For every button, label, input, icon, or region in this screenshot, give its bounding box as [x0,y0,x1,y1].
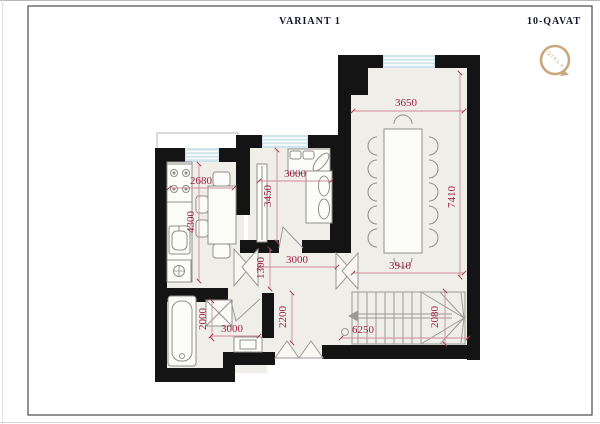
dim-stair-run: 6250 [352,324,375,336]
dim-kitchen-depth: 4300 [185,211,197,234]
kitchen-window [185,148,219,162]
dim-hall-offset: 1300 [255,257,267,280]
dim-living-depth: 7410 [446,186,458,209]
wall-segment [236,135,250,215]
dim-kitchen-width: 2680 [190,175,213,187]
stove-icon [167,164,192,202]
dim-hall-width: 3000 [286,254,309,266]
wall-segment [351,68,368,95]
dim-bedroom-width: 3000 [284,168,307,180]
washbasin-toilet [234,337,262,352]
variant-title: VARIANT 1 [279,16,341,27]
conference-table [384,129,422,253]
dim-living-bottom-width: 3910 [389,260,412,272]
wall-segment [302,240,331,253]
chair-icon [213,244,230,258]
bathtub [168,296,196,366]
chair-icon [196,196,208,213]
living-room-window [383,55,435,68]
corner-sofa [306,171,332,223]
dim-bath-length: 3000 [221,323,244,335]
bedroom-window [262,135,308,148]
floor-plan-drawing: VARIANT 1 10-QAVAT QIBLA [0,0,600,424]
washing-machine-icon [167,260,191,282]
wall-segment [223,352,235,382]
chair-icon [196,220,208,237]
dim-entry-depth: 2200 [277,306,289,329]
dim-living-top-width: 3650 [395,97,418,109]
floor-plan-sheet: VARIANT 1 10-QAVAT QIBLA [0,0,600,424]
wall-segment [262,293,274,338]
wall-segment [249,135,263,148]
wall-segment [322,345,480,359]
qibla-compass-icon: QIBLA [541,46,569,76]
wall-segment [155,148,185,162]
dining-table [208,186,236,244]
dim-bath-width: 2000 [197,308,209,331]
wall-segment [330,135,351,253]
floor-label: 10-QAVAT [527,16,581,27]
wall-segment [467,55,480,360]
qibla-logo-text: QIBLA [546,51,566,71]
chair-icon [213,172,230,186]
wall-segment [338,55,384,68]
dim-stair-width: 2080 [429,306,441,329]
wall-segment [155,148,167,382]
dim-bedroom-depth: 3450 [262,185,274,208]
